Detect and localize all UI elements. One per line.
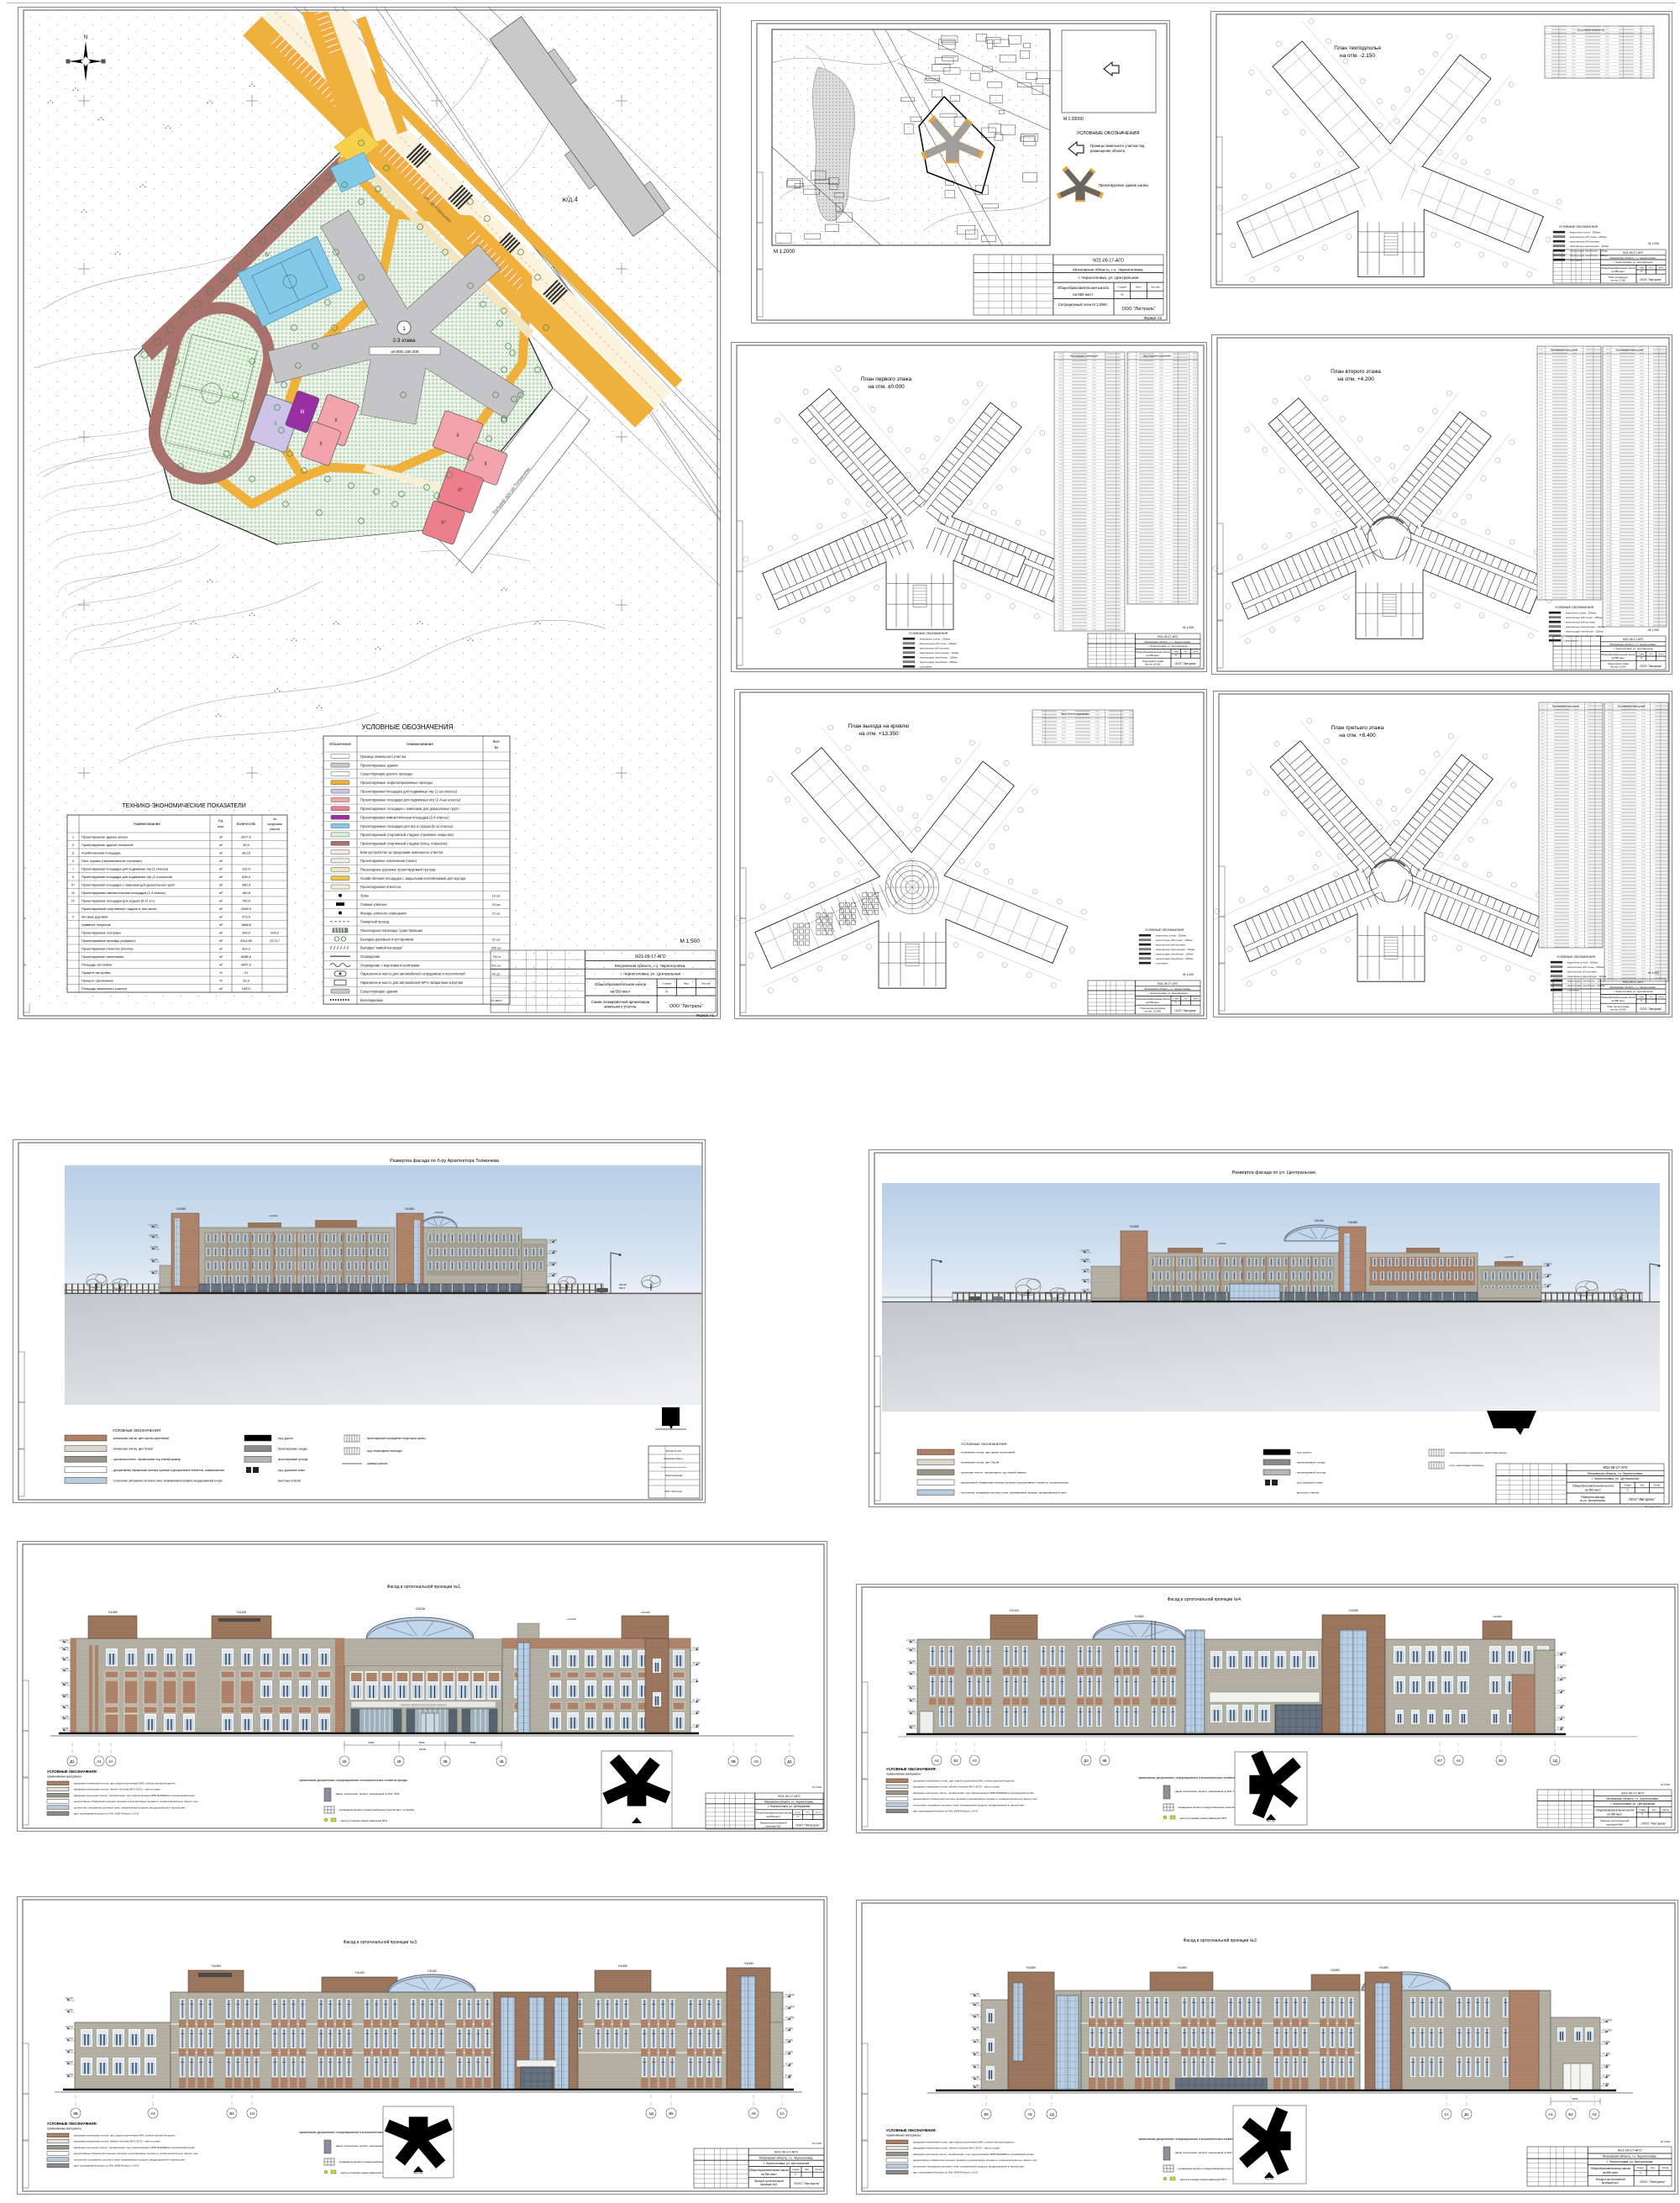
- svg-text:Московская область, г.о. Черно: Московская область, г.о. Черноголовка,: [1145, 987, 1191, 991]
- svg-text:- остекление, витражная систем: - остекление, витражная система и окна: …: [112, 1479, 223, 1482]
- svg-text:ООО "Листраль": ООО "Листраль": [669, 1004, 703, 1009]
- svg-text:700 м: 700 м: [492, 955, 501, 959]
- svg-text:- монолитные ж/б колонны: - монолитные ж/б колонны: [1568, 240, 1599, 244]
- svg-text:Общеобразовательная школа: Общеобразовательная школа: [1601, 996, 1635, 999]
- svg-text:применяемые декоративные, инфо: применяемые декоративные, информационные…: [1138, 2137, 1247, 2141]
- svg-text:+14.550: +14.550: [1504, 1255, 1514, 1259]
- svg-text:УСЛОВНЫЕ ОБОЗНАЧЕНИЯ:: УСЛОВНЫЕ ОБОЗНАЧЕНИЯ:: [961, 1442, 1007, 1446]
- svg-text:1Д: 1Д: [1049, 2112, 1053, 2116]
- svg-text:Общеобразовательная школа: Общеобразовательная школа: [755, 1811, 791, 1815]
- svg-text:II: II: [319, 442, 323, 447]
- svg-text:40 шт.: 40 шт.: [492, 973, 501, 976]
- svg-text:Б2: Б2: [1568, 2112, 1573, 2116]
- svg-text:- фасадная цокольная плитка -: - фасадная цокольная плитка - керамогран…: [72, 2146, 195, 2149]
- svg-text:9/21-09-17-АГО: 9/21-09-17-АГО: [1093, 259, 1124, 264]
- svg-text:6086,6: 6086,6: [241, 954, 251, 959]
- svg-text:- монолитные ж/б стены - 200мм: - монолитные ж/б стены - 200мм: [1564, 616, 1602, 619]
- svg-text:9/21-09-17-АГО: 9/21-09-17-АГО: [1618, 2148, 1641, 2153]
- svg-text:- сущ. пешеходные переходы: - сущ. пешеходные переходы: [1448, 1464, 1484, 1467]
- svg-text:+16.550: +16.550: [1493, 1615, 1502, 1618]
- svg-text:Общеобразовательная школа: Общеобразовательная школа: [1572, 1484, 1614, 1487]
- svg-text:УСЛОВНЫЕ ОБОЗНАЧЕНИЯ: УСЛОВНЫЕ ОБОЗНАЧЕНИЯ: [1145, 928, 1184, 932]
- svg-text:М 1:20000: М 1:20000: [1063, 117, 1084, 122]
- svg-text:Пешеходные переходы существующ: Пешеходные переходы существующие: [360, 928, 423, 933]
- svg-text:Парковочное место для автомоби: Парковочное место для автомобилей сотруд…: [360, 972, 465, 976]
- svg-text:на 550 мест: на 550 мест: [1611, 270, 1625, 273]
- svg-text:Проектируемые проезды (асфальт: Проектируемые проезды (асфальт): [81, 939, 136, 943]
- svg-text:- клинкерная плитка, цвет белы: - клинкерная плитка, цвет белый: [959, 1461, 999, 1464]
- svg-text:30,0: 30,0: [243, 843, 249, 847]
- svg-text:9/21-09-17-АГО: 9/21-09-17-АГО: [774, 2150, 798, 2154]
- svg-text:Московская область, г.о. Черно: Московская область, г.о. Черноголовка,: [1610, 643, 1656, 646]
- svg-text:Парковочное место для автомоби: Парковочное место для автомобилей МГН га…: [360, 981, 463, 985]
- svg-text:г. Черноголовка, ул. Центральн: г. Черноголовка, ул. Центральная: [620, 972, 680, 976]
- svg-text:НОВАЯ ЧЕРНОГОЛОВСКАЯ ШКОЛА: НОВАЯ ЧЕРНОГОЛОВСКАЯ ШКОЛА: [401, 1704, 448, 1707]
- svg-text:на 550 мест: на 550 мест: [1611, 999, 1625, 1002]
- svg-text:Общеобразовательная школа: Общеобразовательная школа: [749, 2169, 789, 2172]
- svg-text:- места установки знаков навиг: - места установки знаков навигации МГН: [339, 2171, 387, 2174]
- svg-text:- места установки знаков навиг: - места установки знаков навигации МГН: [1179, 2178, 1226, 2181]
- svg-text:Стадия: Стадия: [1639, 1810, 1646, 1811]
- svg-text:+18.228: +18.228: [415, 1607, 425, 1611]
- svg-text:План второго этажа: План второго этажа: [1608, 662, 1629, 665]
- svg-text:- проектируемый тротуар: - проектируемый тротуар: [276, 1458, 308, 1461]
- svg-text:Общеобразовательная школа: Общеобразовательная школа: [1601, 266, 1635, 270]
- svg-text:- сущ. пешеходные переходы: - сущ. пешеходные переходы: [365, 1449, 402, 1453]
- svg-text:2848,5: 2848,5: [241, 907, 251, 911]
- svg-text:- клинкерная плитка, цвет белы: - клинкерная плитка, цвет белый: [112, 1448, 153, 1451]
- svg-text:г. Черноголовка, ул. Центральн: г. Черноголовка, ул. Центральная: [1148, 644, 1188, 648]
- svg-text:на отм. +13.350: на отм. +13.350: [858, 731, 899, 737]
- svg-text:В5: В5: [669, 2111, 674, 2116]
- svg-text:Вид №4: Вид №4: [1267, 1819, 1276, 1822]
- svg-text:В4: В4: [1499, 1759, 1504, 1763]
- svg-text:150.29: 150.29: [1045, 1291, 1052, 1295]
- svg-text:Высадка деревьев и кустарников: Высадка деревьев и кустарников: [360, 937, 413, 941]
- svg-text:- монолитные ж/б колонны: - монолитные ж/б колонны: [1154, 944, 1185, 947]
- svg-text:Листов: Листов: [1193, 651, 1199, 653]
- svg-text:- фасадная клинкерная плитка,: - фасадная клинкерная плитка, цвет красн…: [911, 2141, 1015, 2144]
- svg-text:Велопарковка: Велопарковка: [360, 998, 384, 1002]
- svg-text:Листов: Листов: [1658, 267, 1664, 269]
- svg-text:+16.550: +16.550: [1129, 1225, 1139, 1228]
- svg-text:- места установки знаков навиг: - места установки знаков навигации МГН: [1179, 1817, 1226, 1820]
- svg-text:Проектируемая гимнастическая п: Проектируемая гимнастическая площадка (2…: [81, 891, 165, 895]
- svg-text:УСЛОВНЫЕ ОБОЗНАЧЕНИЯ:: УСЛОВНЫЕ ОБОЗНАЧЕНИЯ:: [47, 1769, 97, 1774]
- svg-text:2273,7: 2273,7: [270, 939, 280, 943]
- svg-text:Лист: Лист: [1184, 998, 1187, 1000]
- svg-text:Экспликация помещений: Экспликация помещений: [1143, 355, 1171, 358]
- svg-text:применяемые материалы:: применяемые материалы:: [886, 2134, 921, 2137]
- svg-text:Листов: Листов: [1653, 1484, 1660, 1486]
- svg-text:Формат А3: Формат А3: [1144, 316, 1163, 320]
- svg-text:9/21-09-17-АГО: 9/21-09-17-АГО: [1158, 982, 1178, 986]
- svg-text:Лист: Лист: [1649, 267, 1652, 269]
- svg-text:92 шт.: 92 шт.: [492, 938, 501, 941]
- svg-text:П: П: [1640, 2171, 1641, 2174]
- svg-text:+9.240: +9.240: [65, 1997, 73, 2001]
- svg-text:г. Черноголовка, ул. Центральн: г. Черноголовка, ул. Центральная: [1614, 647, 1653, 650]
- svg-text:V: V: [72, 915, 75, 919]
- svg-text:Проектируемая гимнастическая п: Проектируемая гимнастическая площадка (2…: [360, 815, 449, 819]
- svg-text:924,3: 924,3: [270, 932, 279, 935]
- svg-text:ООО "Листраль": ООО "Листраль": [1174, 1009, 1197, 1012]
- svg-text:- цвет оцинкованной кровли по: - цвет оцинкованной кровли по RAL 9006-Р…: [72, 2164, 139, 2168]
- svg-text:Стадия: Стадия: [1638, 267, 1644, 269]
- svg-text:+7.350: +7.350: [907, 1671, 916, 1675]
- svg-text:на 550 мест: на 550 мест: [1607, 1813, 1623, 1817]
- svg-text:299,0: 299,0: [242, 931, 251, 935]
- svg-text:М 1:2000: М 1:2000: [774, 250, 795, 255]
- svg-text:Вид №1: Вид №1: [633, 1821, 642, 1824]
- svg-text:21: 21: [244, 970, 248, 975]
- svg-text:г. Черноголовка, ул. Центральн: г. Черноголовка, ул. Центральная: [769, 1805, 811, 1808]
- svg-text:М 1:200: М 1:200: [1648, 242, 1659, 245]
- svg-text:Проектируемые площадки для отд: Проектируемые площадки для отдыха (5-11 …: [81, 899, 155, 903]
- svg-text:Площадь застройки: Площадь застройки: [81, 963, 112, 967]
- svg-text:Граница земельного участка: Граница земельного участка: [360, 754, 407, 759]
- svg-text:М 1:100: М 1:100: [812, 1785, 822, 1789]
- svg-text:232,0: 232,0: [242, 867, 251, 871]
- svg-text:-0.380: -0.380: [972, 2085, 979, 2088]
- svg-text:- цвет оцинкованной кровли по: - цвет оцинкованной кровли по RAL 9006-Р…: [72, 1812, 139, 1816]
- svg-text:ООО "Листраль": ООО "Листраль": [1640, 1007, 1662, 1011]
- svg-text:За: За: [273, 818, 276, 821]
- svg-text:- перегородки пеноблоки - 125м: - перегородки пеноблоки - 125мм: [1566, 980, 1604, 983]
- svg-text:В5: В5: [984, 2112, 989, 2116]
- svg-text:II*: II*: [441, 521, 446, 526]
- svg-text:Пожарный проезд: Пожарный проезд: [360, 920, 390, 924]
- svg-text:Наименование: Наименование: [134, 822, 160, 826]
- svg-text:- сущ. дорожные знаки: - сущ. дорожные знаки: [276, 1469, 305, 1472]
- svg-text:+14.510: +14.510: [269, 1214, 278, 1217]
- svg-text:Листов: Листов: [1151, 286, 1159, 289]
- svg-text:План третьего этажа: План третьего этажа: [1331, 725, 1384, 731]
- svg-text:Проектируемые площадки для под: Проектируемые площадки для подвижных игр…: [360, 798, 461, 802]
- svg-text:1868,6: 1868,6: [241, 923, 251, 927]
- svg-text:Лист: Лист: [806, 1812, 810, 1814]
- svg-text:на отм. +13.350: на отм. +13.350: [1145, 1010, 1162, 1013]
- svg-text:Листов: Листов: [1662, 2167, 1669, 2169]
- svg-text:- высотные отметки: - высотные отметки: [1295, 1491, 1320, 1495]
- svg-text:+3.700: +3.700: [65, 2037, 73, 2041]
- svg-text:- декоративные обрамления окон: - декоративные обрамления оконных проемо…: [959, 1481, 1069, 1485]
- svg-text:А4: А4: [1456, 1759, 1461, 1763]
- svg-text:9В: 9В: [731, 1759, 735, 1764]
- svg-text:на отм. +8.400: на отм. +8.400: [1610, 1008, 1626, 1012]
- svg-text:на 550 мест: на 550 мест: [766, 1815, 781, 1818]
- svg-text:Проектируемые площадки с навес: Проектируемые площадки с навесами для до…: [360, 807, 459, 811]
- svg-text:+9.240: +9.240: [971, 2027, 979, 2030]
- svg-text:+5.700: +5.700: [65, 2026, 73, 2029]
- svg-text:3314,05: 3314,05: [240, 939, 252, 943]
- svg-text:4Б: 4Б: [499, 1759, 503, 1764]
- svg-text:П: П: [1641, 271, 1642, 273]
- svg-text:на отм. ±0.000: на отм. ±0.000: [868, 384, 905, 390]
- svg-text:- монолитные ж/б стены - 200мм: - монолитные ж/б стены - 200мм: [1568, 235, 1606, 239]
- svg-text:Проектируемый спортивный стади: Проектируемый спортивный стадион (спец. …: [360, 842, 448, 846]
- svg-text:План выхода на кровлю: План выхода на кровлю: [1140, 1007, 1165, 1010]
- svg-text:Схема планировочной организаци: Схема планировочной организации: [591, 1000, 650, 1004]
- svg-text:- клинкерная плитка, цвет крас: - клинкерная плитка, цвет красно-коричне…: [959, 1451, 1015, 1454]
- svg-text:- фасадная клинкерная плитка,: - фасадная клинкерная плитка, цвет красн…: [911, 1780, 1015, 1783]
- svg-text:Лист: Лист: [1184, 651, 1187, 653]
- svg-text:- кирпичные стены - 250мм: - кирпичные стены - 250мм: [1566, 961, 1598, 965]
- svg-text:+3.270: +3.270: [971, 2064, 979, 2068]
- svg-text:III: III: [71, 891, 74, 895]
- svg-text:Проектируемая площадка для под: Проектируемая площадка для подвижных игр…: [81, 867, 169, 871]
- svg-text:- двери технические, металл, о: - двери технические, металл, окрашенный …: [1173, 1790, 1239, 1793]
- svg-text:Проектируемые здания: Проектируемые здания: [360, 763, 398, 767]
- svg-text:-1.150: -1.150: [692, 1711, 700, 1714]
- svg-text:+1.800: +1.800: [65, 2049, 73, 2053]
- svg-text:+16.550: +16.550: [1330, 1969, 1340, 1972]
- svg-text:III: III: [300, 410, 304, 415]
- svg-text:Высадка "живой изгороди": Высадка "живой изгороди": [360, 946, 403, 950]
- svg-text:- кирпичные стены - 250мм: - кирпичные стены - 250мм: [1154, 934, 1186, 938]
- svg-text:План первого этажа: План первого этажа: [861, 376, 912, 382]
- svg-text:ООО "Листраль": ООО "Листраль": [1640, 665, 1662, 668]
- svg-text:9/21-09-17-АГО: 9/21-09-17-АГО: [778, 1795, 800, 1798]
- svg-text:1А: 1А: [108, 1759, 113, 1764]
- svg-text:Проектируемые асфальтированные: Проектируемые асфальтированные проезды: [360, 781, 433, 785]
- svg-text:А2: А2: [934, 1759, 939, 1763]
- svg-text:УСЛОВНЫЕ ОБОЗНАЧЕНИЯ: УСЛОВНЫЕ ОБОЗНАЧЕНИЯ: [1557, 955, 1596, 959]
- svg-text:Листов: Листов: [815, 1812, 822, 1814]
- svg-text:150.2: 150.2: [619, 1286, 625, 1290]
- svg-text:+16.200: +16.200: [354, 1971, 365, 1974]
- svg-text:+16.100: +16.100: [1009, 1609, 1019, 1612]
- svg-text:- цокольная плитка - керамогра: - цокольная плитка - керамогранит под те…: [112, 1458, 181, 1461]
- svg-text:+3.180: +3.180: [60, 1716, 69, 1719]
- svg-text:УСЛОВНЫЕ ОБОЗНАЧЕНИЯ: УСЛОВНЫЕ ОБОЗНАЧЕНИЯ: [909, 632, 948, 635]
- svg-text:Хозяйственная площадка с закры: Хозяйственная площадка с закрытыми конте…: [360, 876, 466, 881]
- svg-text:Количество: Количество: [237, 822, 256, 826]
- svg-text:Фонарь уличного освещения: Фонарь уличного освещения: [360, 911, 407, 915]
- svg-text:-0.380: -0.380: [1557, 1727, 1564, 1730]
- svg-text:г. Черноголовка, ул. Центральн: г. Черноголовка, ул. Центральная: [1079, 276, 1139, 280]
- svg-text:Общеобразовательная школа: Общеобразовательная школа: [1136, 650, 1170, 654]
- svg-text:+5.000: +5.000: [1081, 1279, 1089, 1282]
- svg-text:П: П: [797, 1815, 799, 1818]
- svg-text:Развертка фасада: Развертка фасада: [665, 1475, 683, 1477]
- svg-text:Д1: Д1: [70, 1759, 75, 1764]
- svg-text:ООО "Листраль": ООО "Листраль": [1640, 2179, 1666, 2184]
- svg-text:г. Черноголовка, ул. Центральн: г. Черноголовка, ул. Центральная: [1614, 990, 1653, 993]
- svg-text:Скамьи уличные: Скамьи уличные: [360, 902, 387, 907]
- svg-text:9/21-09-17-АГО: 9/21-09-17-АГО: [1603, 1465, 1627, 1470]
- svg-text:Московская область, г.о. Черно: Московская область, г.о. Черноголовка,: [759, 2157, 813, 2160]
- svg-text:Проектируемая площадка для под: Проектируемая площадка для подвижных игр…: [360, 789, 458, 793]
- svg-text:земельного участка.: земельного участка.: [604, 1004, 638, 1008]
- svg-text:Стадия: Стадия: [1118, 286, 1127, 289]
- svg-text:- перегородки пеноблоки - 250м: - перегородки пеноблоки - 250мм: [918, 660, 957, 664]
- svg-text:+16.550: +16.550: [108, 1611, 118, 1614]
- svg-text:Д1: Д1: [787, 1759, 792, 1764]
- svg-text:Стадия: Стадия: [1173, 651, 1179, 653]
- svg-text:Московская область, г.о. Черно: Московская область, г.о. Черноголовка,: [1588, 1472, 1643, 1475]
- svg-text:УСЛОВНЫЕ ОБОЗНАЧЕНИЯ: УСЛОВНЫЕ ОБОЗНАЧЕНИЯ: [1555, 606, 1594, 609]
- svg-text:М 1:100: М 1:100: [1661, 2140, 1670, 2143]
- svg-text:УСЛОВНЫЕ ОБОЗНАЧЕНИЯ: УСЛОВНЫЕ ОБОЗНАЧЕНИЯ: [362, 723, 454, 731]
- svg-text:проекции №3.: проекции №3.: [760, 2183, 778, 2186]
- svg-text:Общеобразовательная школа: Общеобразовательная школа: [661, 1467, 687, 1469]
- svg-text:на отм. +8.400: на отм. +8.400: [1339, 733, 1376, 739]
- svg-text:9Б: 9Б: [1102, 1759, 1106, 1763]
- svg-text:П: П: [1175, 655, 1177, 657]
- svg-text:Проектируемая отмостка (плитк: Проектируемая отмостка (плитка): [81, 947, 134, 951]
- svg-text:г. Черноголовка, ул. Центральн: г. Черноголовка, ул. Центральная: [1148, 991, 1188, 995]
- svg-text:3Б: 3Б: [443, 1759, 447, 1764]
- svg-text:- санитарные перегородки - 110: - санитарные перегородки - 110мм: [1154, 948, 1194, 951]
- svg-text:Площадь земельного участка: Площадь земельного участка: [81, 986, 127, 991]
- svg-text:+7.350: +7.350: [65, 2009, 73, 2012]
- svg-text:Московская область, г.о. Черно: Московская область, г.о. Черноголовка,: [1610, 256, 1656, 260]
- svg-text:А5: А5: [1027, 2112, 1032, 2116]
- svg-text:Экспликация помещений: Экспликация помещений: [1061, 712, 1089, 716]
- svg-text:- санитарные перегородки - 110: - санитарные перегородки - 110мм: [1564, 625, 1604, 628]
- svg-text:- декоративные обрамления окон: - декоративные обрамления оконных проемо…: [72, 1800, 198, 1803]
- svg-text:Б2: Б2: [953, 1759, 958, 1763]
- svg-text:II*: II*: [71, 883, 75, 887]
- svg-text:Стадия: Стадия: [792, 2169, 800, 2171]
- svg-text:- фасадная цокольная плитка -: - фасадная цокольная плитка - керамогран…: [72, 1794, 195, 1797]
- svg-text:- сущ. дорога: - сущ. дорога: [1295, 1451, 1311, 1454]
- svg-text:применяемые материалы:: применяемые материалы:: [886, 1773, 921, 1776]
- svg-text:+16.553: +16.553: [211, 1964, 221, 1968]
- svg-text:- перегородки пеноблоки - 125м: - перегородки пеноблоки - 125мм: [1564, 630, 1603, 634]
- svg-text:УСЛОВНЫЕ ОБОЗНАЧЕНИЯ: УСЛОВНЫЕ ОБОЗНАЧЕНИЯ: [1559, 225, 1599, 229]
- svg-text:Общеобразовательная школа: Общеобразовательная школа: [1136, 997, 1170, 1001]
- svg-text:Кол-: Кол-: [493, 739, 501, 744]
- svg-text:+16.100: +16.100: [1314, 1219, 1324, 1222]
- svg-text:9/21-09-17-АГО: 9/21-09-17-АГО: [666, 1449, 681, 1453]
- svg-text:1А: 1А: [780, 2111, 784, 2116]
- svg-text:-0.450: -0.450: [908, 1725, 916, 1728]
- svg-text:- проектируемый тротуар: - проектируемый тротуар: [1295, 1471, 1326, 1475]
- svg-text:-0.450: -0.450: [61, 1727, 69, 1731]
- svg-text:- санитарные перегородки - 110: - санитарные перегородки - 110мм: [918, 651, 958, 655]
- svg-text:+1.500: +1.500: [907, 1711, 916, 1714]
- svg-text:180,8: 180,8: [242, 891, 250, 895]
- svg-text:- проектируемые съезды: - проектируемые съезды: [276, 1448, 307, 1451]
- svg-text:Московская область, г.о. Черно: Московская область, г.о. Черноголовка,: [1610, 986, 1656, 989]
- svg-text:- кирпичные стены - 250мм: - кирпичные стены - 250мм: [1564, 612, 1596, 615]
- svg-text:г. Черноголовка, ул. Центральн: г. Черноголовка, ул. Центральная: [1607, 2160, 1653, 2164]
- svg-text:- кирпичные стены - 250мм: - кирпичные стены - 250мм: [1568, 231, 1600, 234]
- svg-text:План первого этажа: План первого этажа: [1142, 660, 1164, 663]
- svg-text:на отм. -2.150: на отм. -2.150: [1340, 53, 1375, 59]
- svg-text:А4: А4: [150, 2111, 155, 2116]
- svg-text:применяемые материалы:: применяемые материалы:: [47, 1775, 82, 1779]
- svg-text:3600: 3600: [1572, 2097, 1578, 2100]
- svg-text:А1: А1: [97, 1759, 102, 1764]
- svg-text:г. Черноголовка, ул. Центральн: г. Черноголовка, ул. Центральная: [764, 2162, 810, 2165]
- svg-text:Проектируемый спортивный стади: Проектируемый спортивный стадион в том ч…: [81, 907, 158, 911]
- svg-text:+3.180: +3.180: [907, 1698, 916, 1701]
- svg-text:П: П: [665, 990, 668, 993]
- svg-text:- декоративные обрамления окон: - декоративные обрамления оконных проемо…: [911, 2158, 1037, 2162]
- svg-text:во: во: [495, 745, 499, 749]
- svg-text:Пост охраны (некапитальное стр: Пост охраны (некапитальное строение): [81, 859, 142, 863]
- svg-text:- остекление, витражная систем: - остекление, витражная система и окна: …: [72, 1806, 186, 1809]
- svg-text:6300: 6300: [369, 1741, 375, 1744]
- svg-text:- фасадная клинкерная плитка,: - фасадная клинкерная плитка, цвет красн…: [72, 1782, 176, 1785]
- svg-text:+2.150: +2.150: [971, 2076, 979, 2079]
- svg-text:Проектируемое здание школы: Проектируемое здание школы: [81, 835, 128, 839]
- svg-text:А5: А5: [751, 2111, 756, 2116]
- svg-text:- монолитные ж/б колонны: - монолитные ж/б колонны: [1564, 621, 1595, 624]
- svg-text:150.34: 150.34: [1007, 1291, 1014, 1295]
- svg-text:ООО "Листраль": ООО "Листраль": [1121, 307, 1155, 312]
- svg-text:- фасадная клинкерная плитка,: - фасадная клинкерная плитка, цвет красн…: [72, 2134, 176, 2137]
- svg-text:3977,0: 3977,0: [241, 835, 252, 839]
- svg-text:М 1:200: М 1:200: [1183, 626, 1194, 629]
- svg-text:- санитарные перегородки - 110: - санитарные перегородки - 110мм: [1568, 244, 1609, 248]
- svg-text:Лист: Лист: [805, 2169, 810, 2171]
- svg-text:- монолитные ж/б стены - 200мм: - монолитные ж/б стены - 200мм: [1566, 965, 1604, 969]
- svg-text:+5.000: +5.000: [150, 1259, 158, 1262]
- svg-text:- монолитные ж/б стены - 200мм: - монолитные ж/б стены - 200мм: [1154, 939, 1192, 942]
- svg-text:ж/д.4: ж/д.4: [562, 196, 578, 203]
- svg-text:Ограждение: Ограждение: [360, 954, 381, 959]
- svg-text:Проектируемое здание школы: Проектируемое здание школы: [1099, 183, 1148, 187]
- svg-text:II: II: [484, 462, 487, 467]
- svg-text:Стадия: Стадия: [662, 982, 671, 986]
- svg-text:Стадия: Стадия: [1638, 654, 1644, 655]
- svg-text:В4: В4: [229, 2111, 234, 2116]
- svg-text:ООО "Листраль": ООО "Листраль": [1641, 1822, 1667, 1825]
- svg-text:Наименование: Наименование: [407, 742, 433, 746]
- svg-text:+16.550: +16.550: [1347, 1221, 1357, 1224]
- svg-text:- утепление: - утепление: [1568, 259, 1583, 262]
- svg-text:План второго этажа: План второго этажа: [1331, 369, 1381, 375]
- svg-text:+13.640: +13.640: [567, 1617, 576, 1621]
- svg-text:- кирпичные стены - 250мм: - кирпичные стены - 250мм: [918, 638, 950, 641]
- svg-text:Фасад в ортогональной проекции: Фасад в ортогональной проекции №4.: [1168, 1596, 1242, 1602]
- svg-text:Стадия: Стадия: [795, 1812, 801, 1814]
- svg-text:29 шт.: 29 шт.: [492, 903, 501, 907]
- svg-text:УСЛОВНЫЕ ОБОЗНАЧЕНИЯ: УСЛОВНЫЕ ОБОЗНАЧЕНИЯ: [113, 1428, 160, 1433]
- svg-text:+16.550: +16.550: [176, 1207, 186, 1211]
- svg-text:- декоративные обрамления окон: - декоративные обрамления оконных проемо…: [112, 1469, 225, 1472]
- svg-text:+7.350: +7.350: [1081, 1269, 1089, 1272]
- svg-text:1А: 1А: [1444, 2112, 1448, 2116]
- svg-text:Существующие дороги, проезды: Существующие дороги, проезды: [360, 772, 412, 776]
- svg-text:- перегородки пеноблоки - 125м: - перегородки пеноблоки - 125мм: [1154, 953, 1193, 956]
- svg-text:- остекление, витражная систем: - остекление, витражная система и окна: …: [72, 2158, 186, 2161]
- svg-text:+16.550: +16.550: [1348, 1609, 1358, 1612]
- svg-text:ООО "Листраль": ООО "Листраль": [1174, 662, 1197, 665]
- svg-text:проекции №2.: проекции №2.: [1602, 2181, 1620, 2185]
- svg-text:План техподполья: План техподполья: [1334, 45, 1381, 51]
- svg-text:на 550 мест: на 550 мест: [1073, 292, 1093, 297]
- svg-text:Листов: Листов: [1658, 654, 1664, 655]
- svg-text:Московская область, г.о. Черно: Московская область, г.о. Черноголовка,: [764, 1801, 814, 1804]
- svg-text:IV: IV: [265, 253, 270, 258]
- svg-text:- проектируемые съезды: - проектируемые съезды: [1295, 1461, 1326, 1464]
- svg-text:Экспликация помещений: Экспликация помещений: [1577, 29, 1604, 32]
- svg-text:+7.350: +7.350: [150, 1246, 158, 1249]
- svg-text:А1: А1: [1548, 2112, 1553, 2116]
- svg-text:+3.150: +3.150: [1081, 1289, 1089, 1292]
- svg-text:Фасад в ортогональной проекции: Фасад в ортогональной проекции №3.: [344, 1939, 418, 1945]
- svg-text:Проектируемая площадка для под: Проектируемая площадка для подвижных игр…: [81, 875, 173, 879]
- svg-text:Вид №2: Вид №2: [1265, 2177, 1274, 2180]
- svg-text:Стадия: Стадия: [1638, 996, 1644, 998]
- svg-text:Листов: Листов: [815, 2169, 822, 2171]
- svg-text:Лист: Лист: [1649, 654, 1652, 655]
